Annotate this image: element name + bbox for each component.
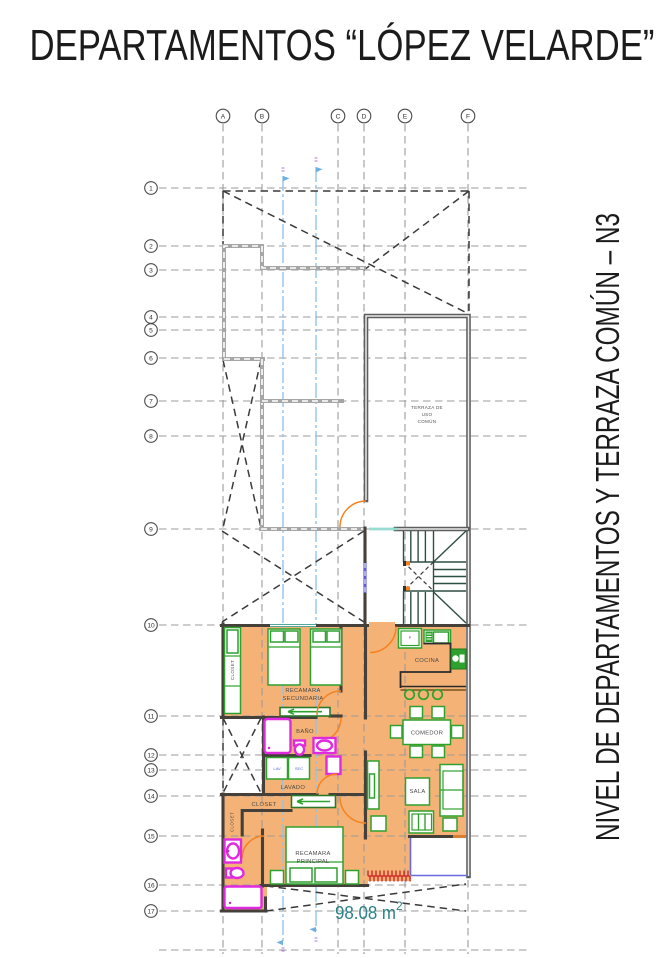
svg-text:D: D [362, 114, 367, 121]
svg-text:NIVEL DE DEPARTAMENTOS Y TERRA: NIVEL DE DEPARTAMENTOS Y TERRAZA COMÚN –… [589, 213, 626, 841]
svg-text:98.08 m: 98.08 m [335, 903, 396, 923]
svg-text:11: 11 [148, 713, 155, 720]
svg-text:SECUNDARIA: SECUNDARIA [282, 696, 323, 702]
svg-text:7: 7 [149, 398, 153, 405]
svg-text:12: 12 [147, 752, 155, 759]
svg-text:COMÚN: COMÚN [418, 418, 437, 424]
svg-text:SEC: SEC [295, 766, 303, 771]
svg-text:16: 16 [147, 882, 155, 889]
svg-text:CLOSET: CLOSET [252, 802, 277, 808]
svg-text:8: 8 [149, 433, 153, 440]
svg-text:3: 3 [149, 267, 153, 274]
svg-text:5: 5 [149, 327, 153, 334]
svg-text:9: 9 [149, 526, 153, 533]
svg-text:A: A [221, 114, 226, 121]
svg-text:2: 2 [396, 899, 403, 913]
svg-text:BAÑO: BAÑO [296, 728, 314, 735]
svg-text:1: 1 [149, 185, 153, 192]
svg-text:SALA: SALA [409, 789, 425, 795]
svg-text:6: 6 [149, 355, 153, 362]
svg-text:2: 2 [149, 243, 153, 250]
svg-text:LAVADO: LAVADO [281, 785, 306, 791]
svg-text:10: 10 [147, 622, 155, 629]
svg-text:14: 14 [147, 793, 155, 800]
svg-text:COCINA: COCINA [415, 658, 439, 664]
svg-text:E: E [403, 114, 408, 121]
svg-text:4: 4 [149, 314, 153, 321]
svg-text:LAV: LAV [273, 766, 281, 771]
svg-text:RECAMARA: RECAMARA [285, 688, 320, 694]
svg-text:DEPARTAMENTOS “LÓPEZ VELARDE”: DEPARTAMENTOS “LÓPEZ VELARDE” [30, 21, 655, 70]
svg-text:USO: USO [422, 412, 433, 417]
svg-text:COMEDOR: COMEDOR [411, 731, 443, 737]
svg-text:RECAMARA: RECAMARA [295, 851, 330, 857]
svg-text:15: 15 [147, 833, 155, 840]
svg-text:13: 13 [147, 767, 155, 774]
svg-text:17: 17 [147, 908, 155, 915]
svg-text:CLOSET: CLOSET [230, 812, 235, 832]
svg-text:PRINCIPAL: PRINCIPAL [297, 859, 330, 865]
svg-text:CLOSET: CLOSET [230, 660, 235, 680]
svg-text:C: C [336, 114, 341, 121]
svg-text:B: B [260, 114, 265, 121]
svg-text:TERRAZA DE: TERRAZA DE [411, 405, 443, 410]
svg-text:F: F [466, 114, 470, 121]
